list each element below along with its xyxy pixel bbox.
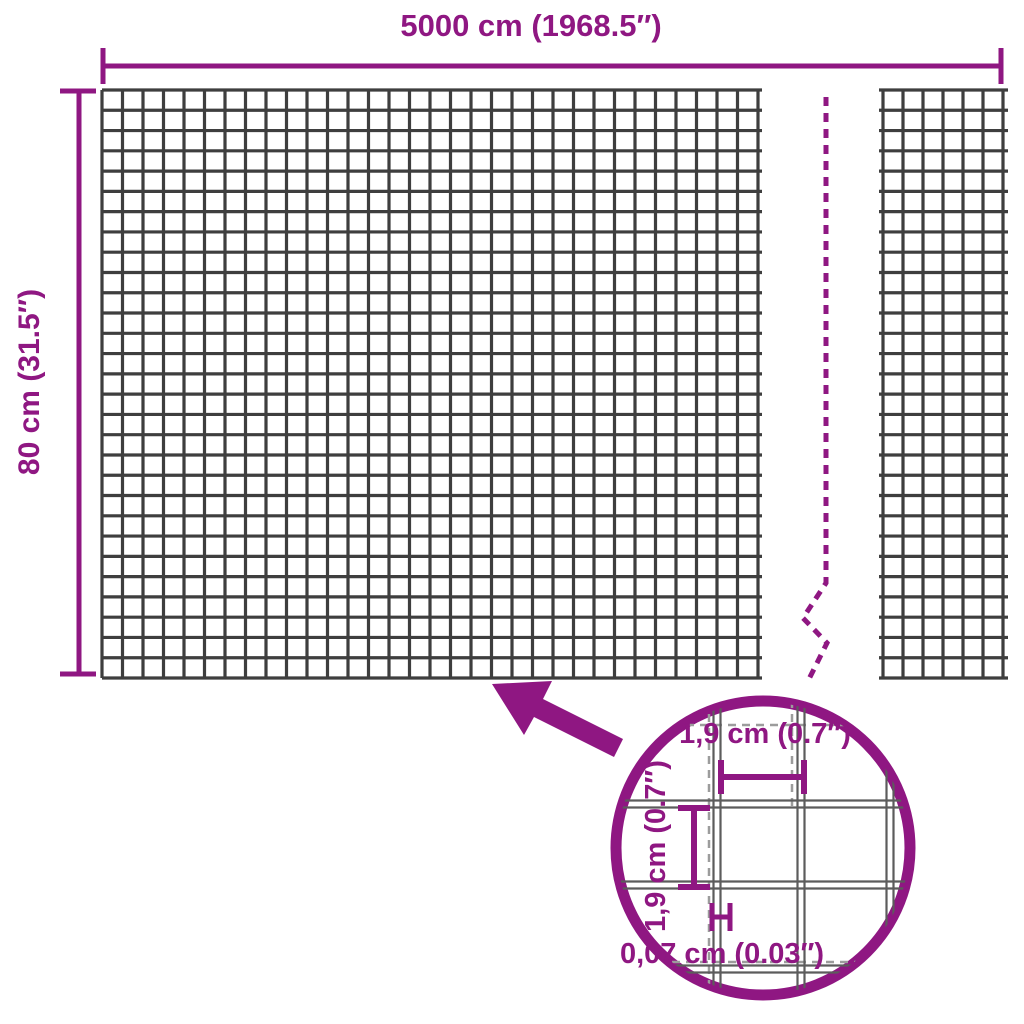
magnifier-arrow-icon bbox=[492, 681, 623, 757]
break-line bbox=[803, 97, 827, 679]
overall-height-label: 80 cm (31.5″) bbox=[10, 202, 50, 562]
diagram-graphics bbox=[0, 0, 1024, 1024]
overall-width-label: 5000 cm (1968.5″) bbox=[331, 6, 731, 46]
mesh-panel-right bbox=[879, 90, 1008, 678]
wire-thickness-label: 0,07 cm (0.03″) bbox=[572, 934, 872, 974]
height-dimension-line bbox=[60, 91, 96, 674]
product-dimension-diagram: 5000 cm (1968.5″) 80 cm (31.5″) 1,9 cm (… bbox=[0, 0, 1024, 1024]
width-dimension-line bbox=[103, 48, 1001, 84]
mesh-panel-main bbox=[102, 90, 762, 678]
